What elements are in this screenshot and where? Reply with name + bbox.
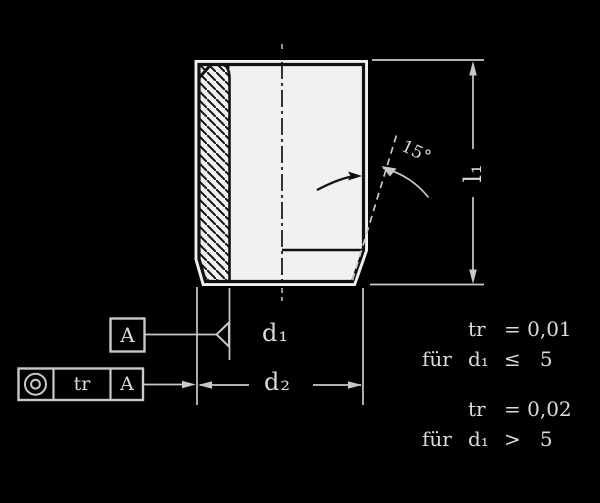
dim-l1-arrow-up-icon (469, 61, 477, 76)
datum-triangle-icon (217, 323, 230, 347)
dim-d2-arrow-left-icon (198, 381, 212, 388)
dim-d1-label: d₁ (262, 321, 289, 345)
note-formula: tr (468, 397, 486, 421)
dim-d2-label: d₂ (264, 370, 291, 394)
note-value: > 5 (504, 427, 553, 451)
note-label: für (422, 427, 452, 451)
technical-drawing: d₁ d₂ l₁ 15° A tr A tr = 0,01 für d₁ ≤ 5… (0, 0, 600, 503)
tolerance-value-label: tr (56, 369, 108, 399)
note-value: = 0,01 (504, 317, 572, 341)
tolerance-datum-ref-label: A (111, 369, 143, 399)
dim-l1-arrow-down-icon (469, 270, 477, 285)
note-formula: tr (468, 317, 486, 341)
datum-box-label: A (110, 319, 145, 351)
note-value: ≤ 5 (504, 347, 553, 371)
concentricity-icon-inner (31, 380, 40, 389)
part-section-view (199, 44, 364, 301)
note-formula: d₁ (468, 427, 489, 451)
dim-d2-arrow-right-icon (348, 381, 362, 388)
concentricity-icon (25, 374, 46, 395)
hatch-band (199, 65, 230, 282)
note-label: für (422, 347, 452, 371)
dim-l1-label: l₁ (458, 158, 488, 188)
tolerance-leader-arrow-icon (182, 381, 196, 388)
note-value: = 0,02 (504, 397, 572, 421)
note-formula: d₁ (468, 347, 489, 371)
